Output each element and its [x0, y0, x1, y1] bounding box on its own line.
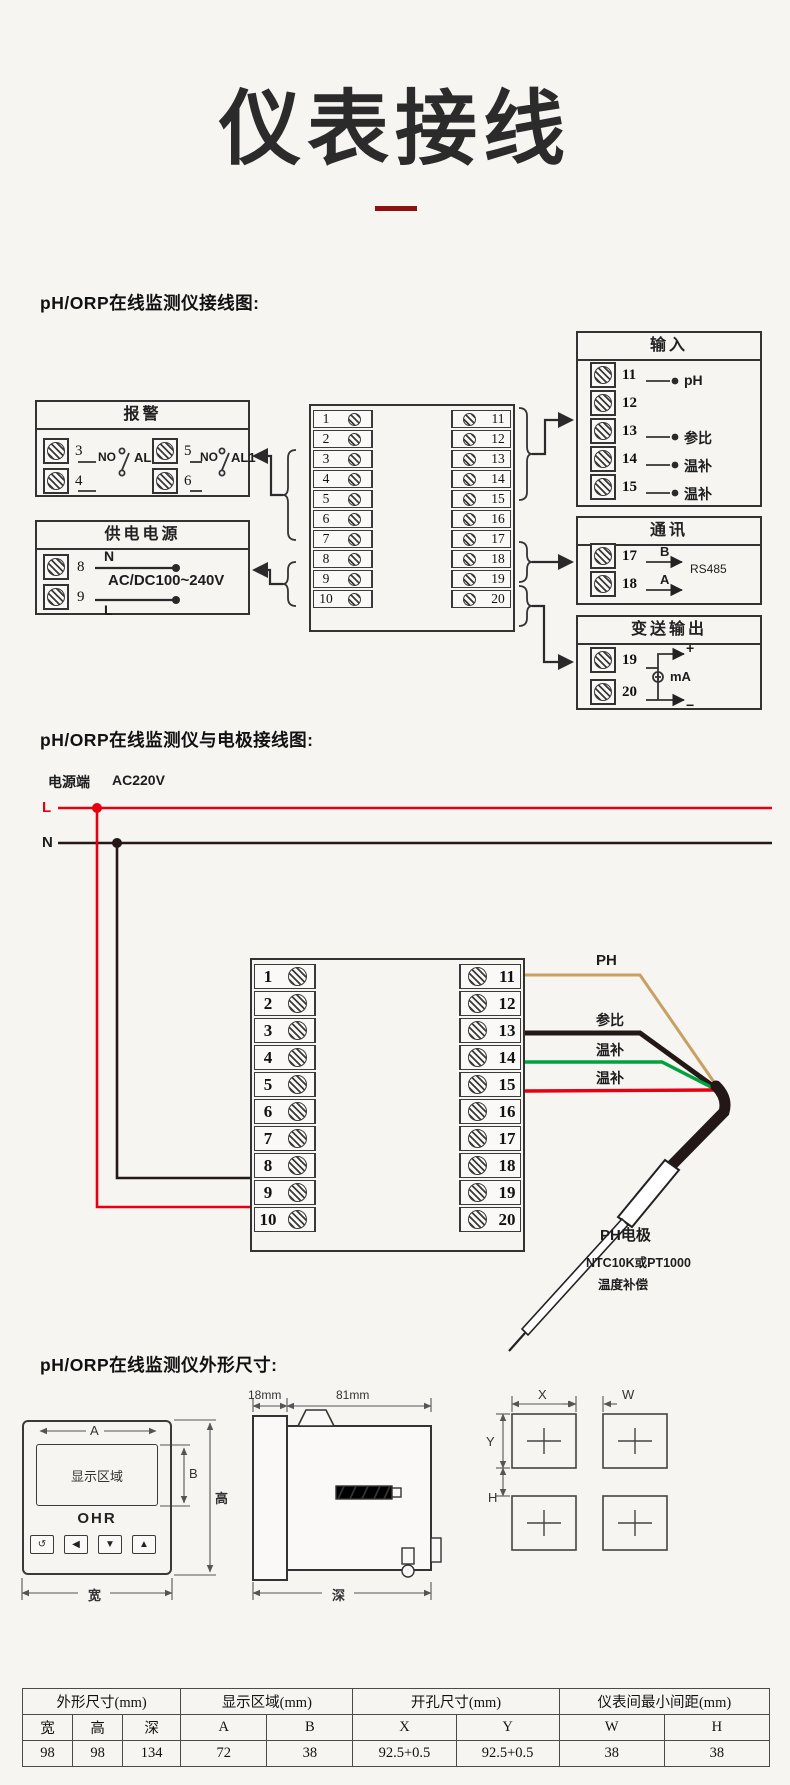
terminal-4-number: 4: [75, 473, 83, 490]
screw-icon: [468, 1156, 487, 1175]
screw-cell: [281, 1181, 315, 1204]
front-depth-label: 18mm: [248, 1388, 281, 1402]
screw-icon: [463, 533, 476, 546]
terminal-row: 11: [459, 964, 521, 989]
terminal-5: [152, 438, 178, 464]
terminal-row: 3: [254, 1018, 316, 1043]
screw-icon: [348, 453, 361, 466]
screw-cell: [460, 1154, 494, 1177]
terminal-number: 13: [486, 451, 510, 467]
s1-alarm-connection: [252, 448, 296, 540]
terminal-row: 17: [451, 530, 511, 548]
screw-icon: [594, 683, 612, 701]
section3-heading: pH/ORP在线监测仪外形尺寸:: [40, 1352, 277, 1377]
ph-electrode-probe: [509, 1086, 725, 1351]
terminal-row: 1: [254, 964, 316, 989]
terminal-number: 19: [494, 1181, 520, 1204]
reference-input-label: 参比: [684, 428, 712, 448]
rs485-label: RS485: [690, 562, 727, 576]
screw-cell: [460, 1046, 494, 1069]
terminal-row: 8: [254, 1153, 316, 1178]
screw-cell: [281, 992, 315, 1015]
side-view-drawing: [253, 1398, 441, 1600]
screw-icon: [348, 553, 361, 566]
screw-icon: [463, 473, 476, 486]
terminal-number: 19: [486, 571, 510, 587]
terminal-row: 18: [451, 550, 511, 568]
terminal-number: 13: [494, 1019, 520, 1042]
power-supply-box-title: 供电电源: [37, 522, 248, 550]
screw-cell: [460, 1208, 494, 1231]
terminal-13: [590, 418, 616, 444]
terminal-19: [590, 647, 616, 673]
terminal-number: 7: [314, 531, 338, 547]
terminal-3: [43, 438, 69, 464]
display-area: 显示区域: [36, 1444, 158, 1506]
mains-voltage-label: AC220V: [112, 772, 165, 788]
page: 仪表接线 pH/ORP在线监测仪接线图: 报警 3 4 NO AL2 5 6 N…: [0, 0, 790, 1785]
terminal-number: 6: [314, 511, 338, 527]
terminal-row: 5: [313, 490, 373, 508]
terminal-9: [43, 584, 69, 610]
temp-comp-input-label: 温补: [684, 456, 712, 476]
screw-cell: [452, 471, 486, 487]
screw-icon: [47, 442, 65, 460]
electrode-name-label: PH电极: [600, 1224, 651, 1245]
screw-cell: [338, 551, 372, 567]
neutral-line-label: N: [42, 834, 53, 851]
terminal-number: 8: [314, 551, 338, 567]
screw-icon: [463, 553, 476, 566]
plus-label: +: [686, 640, 694, 656]
up-arrow-icon: ▲: [139, 1539, 149, 1550]
terminal-20: [590, 679, 616, 705]
rs485-a-label: A: [660, 572, 669, 587]
table-header-row: 外形尺寸(mm) 显示区域(mm) 开孔尺寸(mm) 仪表间最小间距(mm): [23, 1689, 770, 1715]
screw-icon: [348, 533, 361, 546]
terminal-row: 20: [459, 1207, 521, 1232]
left-arrow-icon: ◀: [72, 1539, 80, 1550]
terminal-column-right: 11121314151617181920: [449, 408, 513, 628]
terminal-column-left: 12345678910: [252, 962, 318, 1248]
temp-comp-wire-label: 温补: [596, 1040, 624, 1060]
screw-icon: [594, 651, 612, 669]
table-cell: 高: [73, 1715, 123, 1741]
body-depth-label: 81mm: [336, 1388, 369, 1402]
screw-cell: [452, 431, 486, 447]
terminal-row: 2: [254, 991, 316, 1016]
ph-wire-label: PH: [596, 952, 617, 969]
screw-icon: [463, 413, 476, 426]
terminal-number: 3: [255, 1019, 281, 1042]
terminal-row: 6: [313, 510, 373, 528]
screw-icon: [468, 1021, 487, 1040]
table-group-spacing: 仪表间最小间距(mm): [559, 1689, 769, 1715]
terminal-number: 17: [486, 531, 510, 547]
screw-cell: [460, 1181, 494, 1204]
screw-icon: [468, 994, 487, 1013]
screw-icon: [288, 1075, 307, 1094]
dim-y-label: Y: [486, 1434, 495, 1449]
terminal-18: [590, 571, 616, 597]
screw-icon: [468, 1075, 487, 1094]
screw-icon: [288, 1102, 307, 1121]
screw-cell: [460, 1019, 494, 1042]
screw-cell: [452, 511, 486, 527]
screw-cell: [452, 571, 486, 587]
comm-box-title: 通讯: [578, 518, 760, 546]
terminal-number: 20: [486, 591, 510, 607]
mains-terminal-label: 电源端: [48, 772, 90, 792]
terminal-14-number: 14: [622, 451, 637, 468]
terminal-row: 13: [451, 450, 511, 468]
table-cell: 宽: [23, 1715, 73, 1741]
terminal-number: 20: [494, 1208, 520, 1231]
screw-icon: [47, 472, 65, 490]
terminal-14: [590, 446, 616, 472]
no-label: NO: [200, 450, 218, 464]
terminal-18-number: 18: [622, 576, 637, 593]
s1-power-connection: [252, 562, 296, 606]
loop-icon: ↺: [38, 1539, 46, 1550]
page-title: 仪表接线: [0, 62, 790, 181]
ma-unit-label: mA: [670, 669, 691, 684]
screw-icon: [594, 394, 612, 412]
screw-icon: [463, 433, 476, 446]
screw-icon: [288, 1210, 307, 1229]
dim-w-label: W: [622, 1387, 634, 1402]
terminal-row: 10: [254, 1207, 316, 1232]
terminal-4: [43, 468, 69, 494]
terminal-number: 5: [314, 491, 338, 507]
screw-icon: [348, 493, 361, 506]
terminal-row: 7: [254, 1126, 316, 1151]
screw-cell: [281, 1019, 315, 1042]
screw-icon: [468, 1048, 487, 1067]
screw-icon: [594, 547, 612, 565]
left-button[interactable]: ◀: [64, 1535, 88, 1554]
screw-cell: [338, 591, 372, 607]
screw-cell: [281, 1100, 315, 1123]
table-cell: 38: [664, 1741, 769, 1767]
terminal-15-number: 15: [622, 479, 637, 496]
terminal-number: 18: [494, 1154, 520, 1177]
screw-cell: [452, 491, 486, 507]
dimension-table: 外形尺寸(mm) 显示区域(mm) 开孔尺寸(mm) 仪表间最小间距(mm) 宽…: [22, 1688, 770, 1767]
table-cell: W: [559, 1715, 664, 1741]
screw-cell: [281, 1208, 315, 1231]
terminal-row: 19: [459, 1180, 521, 1205]
screw-cell: [281, 1073, 315, 1096]
screw-icon: [468, 967, 487, 986]
screw-cell: [452, 551, 486, 567]
terminal-row: 2: [313, 430, 373, 448]
screw-icon: [348, 513, 361, 526]
table-group-cutout: 开孔尺寸(mm): [353, 1689, 559, 1715]
terminal-row: 3: [313, 450, 373, 468]
terminal-11-number: 11: [622, 367, 636, 384]
terminal-block-main: 12345678910 11121314151617181920: [309, 404, 515, 632]
screw-icon: [594, 478, 612, 496]
screw-icon: [463, 593, 476, 606]
terminal-20-number: 20: [622, 684, 637, 701]
table-cell: 92.5+0.5: [353, 1741, 456, 1767]
terminal-number: 1: [314, 411, 338, 427]
dim-b-label: B: [189, 1466, 198, 1481]
terminal-row: 6: [254, 1099, 316, 1124]
screw-icon: [47, 588, 65, 606]
terminal-row: 4: [313, 470, 373, 488]
dim-width-label: 宽: [88, 1585, 101, 1604]
reference-wire-label: 参比: [596, 1010, 624, 1030]
table-cell: 38: [267, 1741, 353, 1767]
terminal-11: [590, 362, 616, 388]
title-underline: [375, 206, 417, 211]
terminal-row: 17: [459, 1126, 521, 1151]
table-cell: 38: [559, 1741, 664, 1767]
terminal-row: 11: [451, 410, 511, 428]
table-cell: 134: [123, 1741, 181, 1767]
table-group-outline: 外形尺寸(mm): [23, 1689, 181, 1715]
screw-cell: [452, 591, 486, 607]
terminal-row: 14: [451, 470, 511, 488]
screw-cell: [281, 1046, 315, 1069]
terminal-row: 8: [313, 550, 373, 568]
table-cell: 92.5+0.5: [456, 1741, 559, 1767]
terminal-3-number: 3: [75, 443, 83, 460]
screw-icon: [47, 558, 65, 576]
screw-icon: [463, 493, 476, 506]
screw-cell: [338, 471, 372, 487]
terminal-6: [152, 468, 178, 494]
screw-cell: [460, 1127, 494, 1150]
screw-icon: [463, 453, 476, 466]
terminal-number: 11: [494, 965, 520, 988]
screw-cell: [452, 531, 486, 547]
table-subheader-row: 宽高深ABXYWH: [23, 1715, 770, 1741]
terminal-row: 16: [451, 510, 511, 528]
terminal-number: 18: [486, 551, 510, 567]
terminal-8: [43, 554, 69, 580]
terminal-row: 1: [313, 410, 373, 428]
terminal-row: 18: [459, 1153, 521, 1178]
table-value-row: 9898134723892.5+0.592.5+0.53838: [23, 1741, 770, 1767]
screw-cell: [338, 411, 372, 427]
terminal-12-number: 12: [622, 395, 637, 412]
terminal-number: 14: [486, 471, 510, 487]
temp-comp-wire-label: 温补: [596, 1068, 624, 1088]
terminal-number: 12: [486, 431, 510, 447]
table-cell: A: [181, 1715, 267, 1741]
terminal-row: 12: [451, 430, 511, 448]
terminal-row: 7: [313, 530, 373, 548]
screw-icon: [468, 1102, 487, 1121]
screw-icon: [348, 573, 361, 586]
terminal-column-left: 12345678910: [311, 408, 375, 628]
terminal-block-electrode: 12345678910 11121314151617181920: [250, 958, 525, 1252]
no-label: NO: [98, 450, 116, 464]
terminal-number: 16: [486, 511, 510, 527]
section1-heading: pH/ORP在线监测仪接线图:: [40, 290, 259, 315]
brand-logo: OHR: [22, 1510, 172, 1527]
electrode-compensation-label: 温度补偿: [598, 1274, 648, 1293]
terminal-17-number: 17: [622, 548, 637, 565]
table-cell: H: [664, 1715, 769, 1741]
live-label: L: [104, 602, 113, 618]
terminal-row: 20: [451, 590, 511, 608]
terminal-row: 16: [459, 1099, 521, 1124]
electrode-sensor-label: NTC10K或PT1000: [586, 1252, 691, 1271]
supply-voltage-label: AC/DC100~240V: [108, 572, 224, 589]
terminal-number: 17: [494, 1127, 520, 1150]
loop-button[interactable]: ↺: [30, 1535, 54, 1554]
terminal-5-number: 5: [184, 443, 192, 460]
terminal-row: 12: [459, 991, 521, 1016]
screw-icon: [288, 1183, 307, 1202]
table-cell: 深: [123, 1715, 181, 1741]
terminal-row: 15: [459, 1072, 521, 1097]
terminal-number: 2: [255, 992, 281, 1015]
live-line-label: L: [42, 799, 51, 816]
screw-icon: [348, 593, 361, 606]
screw-icon: [156, 442, 174, 460]
terminal-number: 10: [255, 1208, 281, 1231]
terminal-number: 6: [255, 1100, 281, 1123]
panel-cutout-drawing: [496, 1396, 667, 1550]
s1-input-connection: [519, 408, 574, 500]
screw-cell: [452, 411, 486, 427]
table-cell: 98: [73, 1741, 123, 1767]
terminal-number: 15: [486, 491, 510, 507]
screw-cell: [338, 571, 372, 587]
terminal-row: 15: [451, 490, 511, 508]
screw-cell: [460, 965, 494, 988]
table-cell: Y: [456, 1715, 559, 1741]
terminal-row: 14: [459, 1045, 521, 1070]
terminal-number: 16: [494, 1100, 520, 1123]
screw-icon: [463, 513, 476, 526]
screw-cell: [338, 431, 372, 447]
screw-icon: [288, 1021, 307, 1040]
terminal-row: 9: [254, 1180, 316, 1205]
terminal-number: 15: [494, 1073, 520, 1096]
screw-cell: [460, 1100, 494, 1123]
terminal-17: [590, 543, 616, 569]
table-cell: B: [267, 1715, 353, 1741]
terminal-row: 10: [313, 590, 373, 608]
transmit-output-box-title: 变送输出: [578, 617, 760, 645]
screw-cell: [338, 491, 372, 507]
section2-heading: pH/ORP在线监测仪与电极接线图:: [40, 727, 313, 752]
screw-icon: [288, 1048, 307, 1067]
terminal-8-number: 8: [77, 559, 85, 576]
dim-depth-label: 深: [332, 1585, 345, 1604]
terminal-number: 1: [255, 965, 281, 988]
table-cell: X: [353, 1715, 456, 1741]
temp-comp-input-label: 温补: [684, 484, 712, 504]
screw-icon: [594, 366, 612, 384]
terminal-row: 4: [254, 1045, 316, 1070]
terminal-number: 9: [255, 1181, 281, 1204]
terminal-number: 4: [314, 471, 338, 487]
screw-icon: [288, 1129, 307, 1148]
dim-x-label: X: [538, 1387, 547, 1402]
terminal-row: 9: [313, 570, 373, 588]
terminal-row: 19: [451, 570, 511, 588]
terminal-19-number: 19: [622, 652, 637, 669]
terminal-number: 12: [494, 992, 520, 1015]
screw-icon: [463, 573, 476, 586]
dim-h-label: H: [488, 1490, 497, 1505]
screw-icon: [348, 433, 361, 446]
screw-icon: [468, 1183, 487, 1202]
s1-comm-connection: [519, 542, 574, 582]
s1-transmit-connection: [519, 586, 574, 670]
terminal-12: [590, 390, 616, 416]
screw-cell: [281, 965, 315, 988]
terminal-number: 4: [255, 1046, 281, 1069]
screw-icon: [594, 575, 612, 593]
terminal-number: 9: [314, 571, 338, 587]
screw-cell: [338, 531, 372, 547]
neutral-label: N: [104, 548, 114, 564]
screw-icon: [468, 1210, 487, 1229]
terminal-number: 14: [494, 1046, 520, 1069]
rs485-b-label: B: [660, 544, 669, 559]
minus-label: −: [686, 697, 694, 713]
terminal-number: 7: [255, 1127, 281, 1150]
al1-label: AL1: [231, 450, 256, 465]
table-group-display: 显示区域(mm): [181, 1689, 353, 1715]
screw-cell: [281, 1127, 315, 1150]
table-cell: 98: [23, 1741, 73, 1767]
down-button[interactable]: ▼: [98, 1535, 122, 1554]
screw-cell: [338, 511, 372, 527]
screw-icon: [288, 994, 307, 1013]
down-arrow-icon: ▼: [105, 1539, 115, 1550]
terminal-15: [590, 474, 616, 500]
screw-cell: [338, 451, 372, 467]
screw-cell: [452, 451, 486, 467]
screw-cell: [281, 1154, 315, 1177]
terminal-6-number: 6: [184, 473, 192, 490]
screw-icon: [468, 1129, 487, 1148]
terminal-number: 8: [255, 1154, 281, 1177]
terminal-row: 13: [459, 1018, 521, 1043]
screw-icon: [288, 967, 307, 986]
terminal-column-right: 11121314151617181920: [457, 962, 523, 1248]
screw-cell: [460, 992, 494, 1015]
ph-input-label: pH: [684, 372, 703, 388]
dim-a-label: A: [90, 1423, 99, 1438]
screw-icon: [594, 422, 612, 440]
up-button[interactable]: ▲: [132, 1535, 156, 1554]
terminal-number: 5: [255, 1073, 281, 1096]
input-box-title: 输入: [578, 333, 760, 361]
dim-height-label: 高: [215, 1488, 228, 1507]
terminal-number: 3: [314, 451, 338, 467]
screw-icon: [288, 1156, 307, 1175]
table-cell: 72: [181, 1741, 267, 1767]
screw-icon: [594, 450, 612, 468]
screw-icon: [348, 473, 361, 486]
terminal-number: 10: [314, 591, 338, 607]
terminal-number: 11: [486, 411, 510, 427]
terminal-13-number: 13: [622, 423, 637, 440]
screw-icon: [348, 413, 361, 426]
screw-cell: [460, 1073, 494, 1096]
terminal-9-number: 9: [77, 589, 85, 606]
